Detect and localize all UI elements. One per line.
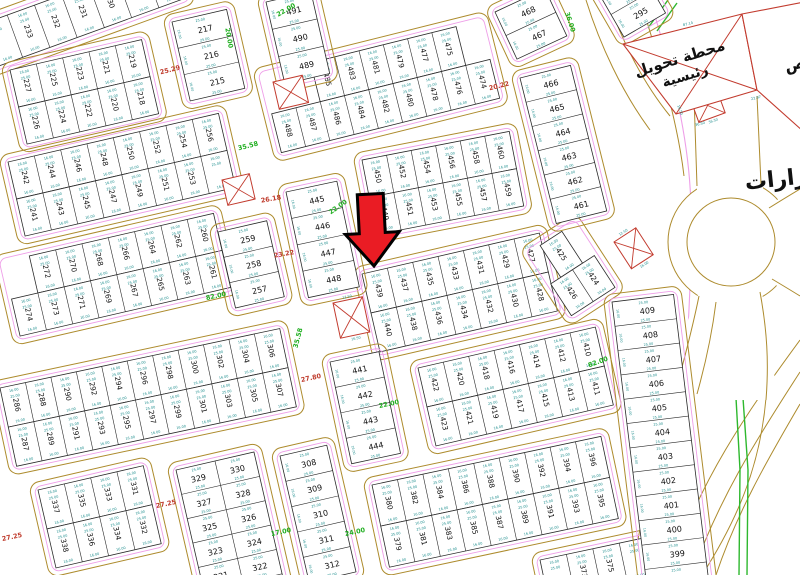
- svg-text:36.00: 36.00: [563, 11, 577, 33]
- measure-label: 35.58: [291, 327, 304, 349]
- measure-label: 24.00: [344, 526, 366, 538]
- svg-text:27.25: 27.25: [1, 531, 23, 543]
- measure-label: 25.29: [159, 64, 181, 77]
- svg-text:16.50: 16.50: [351, 336, 361, 342]
- svg-text:407: 407: [645, 354, 661, 365]
- svg-text:406: 406: [648, 379, 664, 390]
- blk-287: 16.0025.0016.0028616.0025.0016.0028816.0…: [0, 319, 306, 476]
- svg-text:زارات: زارات: [744, 164, 800, 195]
- blk-331: 16.0025.0016.0033716.0025.0016.0033516.0…: [28, 456, 170, 575]
- svg-text:373: 373: [578, 563, 590, 575]
- utility-plot: 12.5016.00: [611, 224, 656, 274]
- svg-text:405: 405: [651, 403, 667, 414]
- svg-text:27.80: 27.80: [300, 372, 322, 384]
- svg-text:27.25: 27.25: [155, 498, 177, 510]
- measure-label: 26.18: [260, 193, 282, 205]
- measure-label: 35.58: [237, 140, 259, 153]
- cadastral-map: 16.0025.0016.0016.0025.0016.0023316.0025…: [0, 0, 800, 575]
- street-name-fragment: زارات: [744, 164, 800, 195]
- road-line: [702, 398, 766, 575]
- svg-text:25.29: 25.29: [159, 64, 181, 77]
- road-line: [716, 404, 800, 575]
- col-215: 25.0025.0016.0021725.0025.0016.0021625.0…: [162, 0, 254, 111]
- col-441: 25.0025.0016.0044125.0025.0016.0044225.0…: [321, 342, 411, 473]
- svg-text:408: 408: [642, 330, 658, 341]
- measure-label: 27.80: [300, 372, 322, 384]
- svg-text:35.58: 35.58: [237, 140, 259, 153]
- svg-text:401: 401: [663, 500, 679, 511]
- utility-plot: [273, 75, 309, 109]
- roundabout-island: [687, 198, 775, 286]
- measure-label: 27.25: [1, 531, 23, 543]
- measure-label: 36.00: [563, 11, 577, 33]
- svg-text:404: 404: [654, 427, 670, 438]
- svg-text:399: 399: [669, 549, 685, 560]
- utility-plot: [222, 174, 255, 206]
- svg-text:26.18: 26.18: [260, 193, 282, 205]
- svg-text:402: 402: [660, 476, 676, 487]
- svg-text:409: 409: [639, 306, 655, 317]
- svg-text:35.58: 35.58: [291, 327, 304, 349]
- map-canvas: 16.0025.0016.0016.0025.0016.0023316.0025…: [0, 0, 800, 575]
- svg-text:400: 400: [666, 524, 682, 535]
- svg-text:24.00: 24.00: [344, 526, 366, 538]
- measure-label: 27.25: [155, 498, 177, 510]
- svg-text:403: 403: [657, 452, 673, 463]
